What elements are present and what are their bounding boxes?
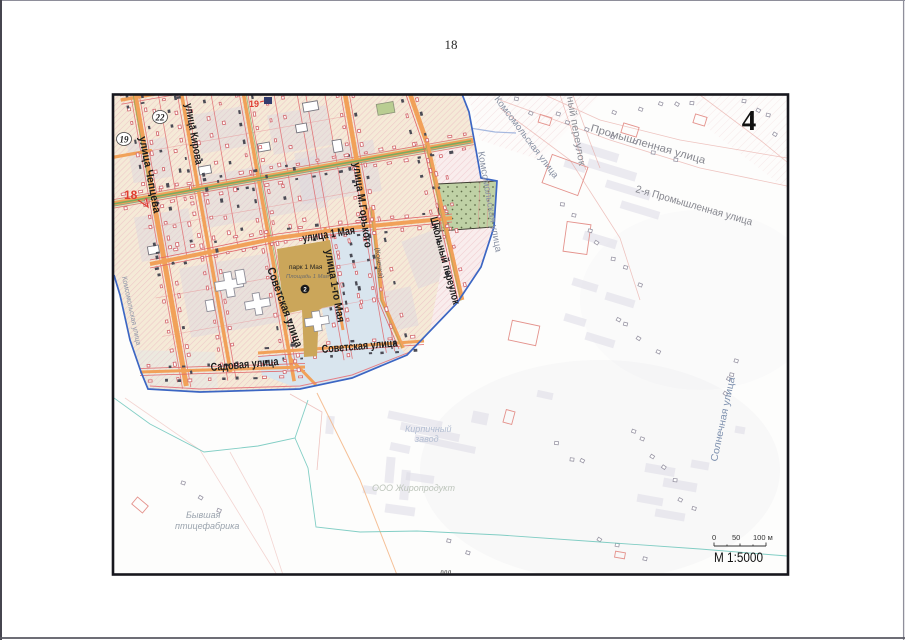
svg-text:Бывшая: Бывшая bbox=[186, 510, 221, 520]
svg-text:парк 1 Мая: парк 1 Мая bbox=[289, 264, 323, 271]
svg-text:50: 50 bbox=[732, 533, 740, 542]
svg-text:100 м: 100 м bbox=[753, 533, 773, 542]
svg-text:19: 19 bbox=[120, 135, 130, 145]
svg-text:22: 22 bbox=[155, 113, 166, 123]
svg-text:завод: завод bbox=[414, 434, 439, 444]
svg-text:18: 18 bbox=[445, 37, 458, 52]
svg-text:18: 18 bbox=[124, 188, 138, 202]
svg-text:М 1:5000: М 1:5000 bbox=[714, 550, 763, 565]
svg-text:19: 19 bbox=[249, 99, 259, 109]
svg-text:0: 0 bbox=[712, 533, 716, 542]
svg-text:ллл: ллл bbox=[440, 569, 452, 576]
svg-text:4: 4 bbox=[742, 105, 757, 137]
svg-text:Площадь 1 Мая: Площадь 1 Мая bbox=[286, 274, 329, 280]
svg-text:ООО Жиропродукт: ООО Жиропродукт bbox=[372, 483, 455, 493]
svg-text:Кирпичный: Кирпичный bbox=[405, 424, 452, 434]
svg-text:птицефабрика: птицефабрика bbox=[175, 521, 239, 531]
